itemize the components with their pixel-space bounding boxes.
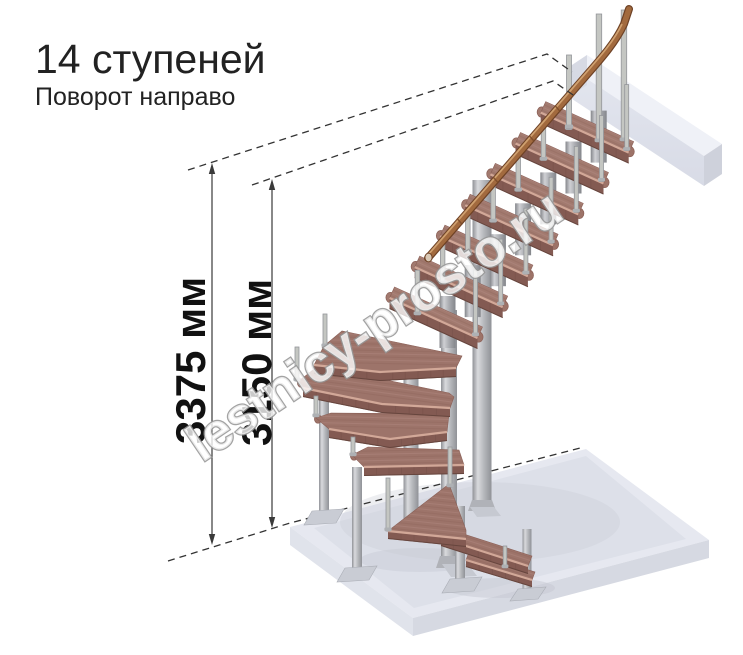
svg-text:Поворот направо: Поворот направо bbox=[35, 83, 235, 111]
svg-text:14 ступеней: 14 ступеней bbox=[35, 36, 266, 82]
